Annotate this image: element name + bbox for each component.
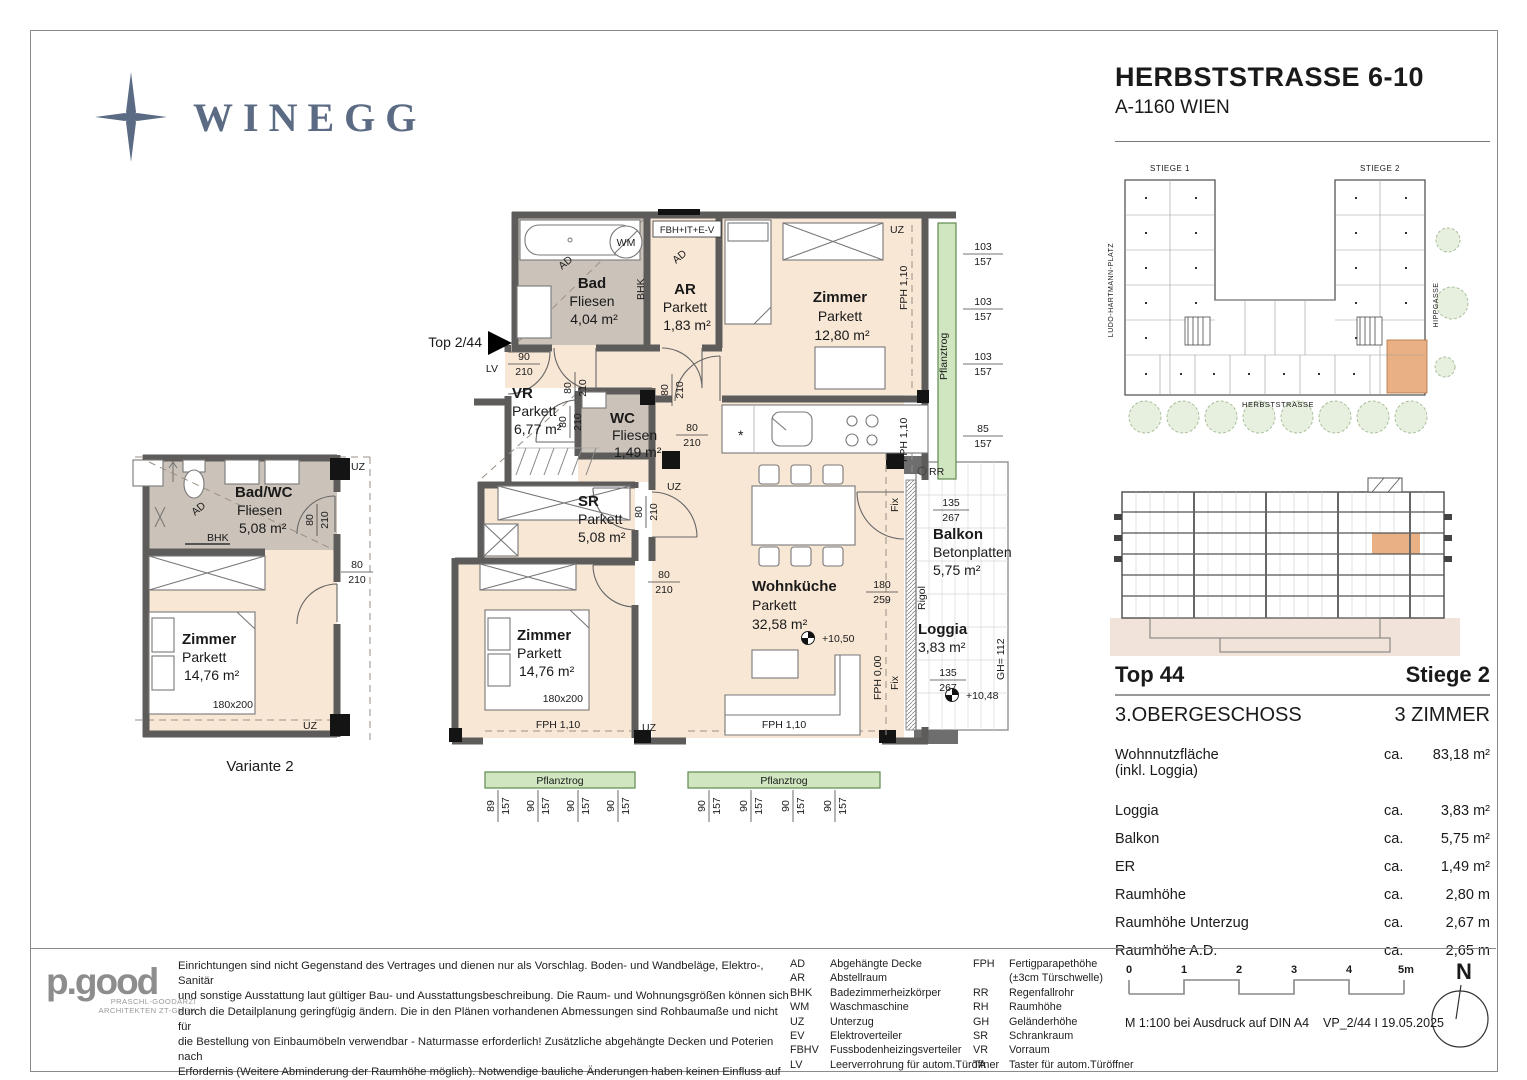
svg-text:90: 90 <box>738 800 750 812</box>
svg-text:157: 157 <box>580 797 592 815</box>
svg-text:157: 157 <box>837 797 849 815</box>
svg-text:90: 90 <box>605 800 617 812</box>
closet-icon <box>133 460 163 486</box>
svg-text:210: 210 <box>319 511 331 529</box>
svg-text:Fix: Fix <box>889 675 901 690</box>
variante-wardrobe-icon <box>149 556 265 590</box>
svg-text:Parkett: Parkett <box>517 645 561 661</box>
svg-text:90: 90 <box>518 351 530 363</box>
svg-text:90: 90 <box>822 800 834 812</box>
svg-text:4,04 m²: 4,04 m² <box>570 311 618 327</box>
table-row: ER ca. 1,49 m² <box>1115 853 1490 881</box>
svg-text:Pflanztrog: Pflanztrog <box>938 333 950 380</box>
wardrobe-zimmer2-icon <box>480 564 576 590</box>
footer: p.good PRASCHL-GOODARZI ARCHITEKTEN ZT-G… <box>30 948 1496 1071</box>
svg-text:180: 180 <box>873 579 891 591</box>
highlighted-unit <box>1387 340 1427 393</box>
svg-text:80: 80 <box>304 514 316 526</box>
svg-text:UZ: UZ <box>890 224 905 236</box>
svg-text:4: 4 <box>1346 964 1353 976</box>
svg-text:90: 90 <box>565 800 577 812</box>
svg-text:90: 90 <box>696 800 708 812</box>
svg-text:WC: WC <box>610 410 635 427</box>
svg-text:12,80 m²: 12,80 m² <box>814 327 870 343</box>
svg-text:157: 157 <box>711 797 723 815</box>
svg-text:157: 157 <box>753 797 765 815</box>
svg-text:GH= 112: GH= 112 <box>995 638 1007 680</box>
svg-text:6,77 m²: 6,77 m² <box>514 421 562 437</box>
entry-label: Top 2/44 <box>428 334 482 350</box>
roof-structure <box>1368 478 1402 492</box>
variante-caption: Variante 2 <box>125 758 395 775</box>
wardrobe-sr-left-icon <box>484 524 518 556</box>
svg-text:Pflanztrog: Pflanztrog <box>760 775 807 787</box>
project-title-block: HERBSTSTRASSE 6-10 A-1160 WIEN <box>1115 62 1493 119</box>
svg-text:WM: WM <box>617 237 636 249</box>
svg-text:FPH 1,10: FPH 1,10 <box>762 719 807 731</box>
floor-level: 3.OBERGESCHOSS <box>1115 704 1302 727</box>
svg-text:157: 157 <box>620 797 632 815</box>
basin1-icon <box>225 460 259 484</box>
svg-text:210: 210 <box>572 413 584 431</box>
svg-text:Bad/WC: Bad/WC <box>235 484 293 501</box>
svg-text:0: 0 <box>1126 964 1132 976</box>
lv-label: LV <box>486 363 498 375</box>
svg-text:180x200: 180x200 <box>213 699 253 711</box>
svg-text:Bad: Bad <box>578 275 606 292</box>
svg-text:Rigol: Rigol <box>916 586 928 610</box>
svg-text:5m: 5m <box>1398 964 1414 976</box>
svg-text:Betonplatten: Betonplatten <box>933 544 1012 560</box>
table-row: Loggia ca. 3,83 m² <box>1115 797 1490 825</box>
project-title: HERBSTSTRASSE 6-10 <box>1115 62 1493 93</box>
svg-text:5,08 m²: 5,08 m² <box>578 529 626 545</box>
street-right-label: HIPPGASSE <box>1433 283 1440 328</box>
svg-text:AR: AR <box>674 281 696 298</box>
info-panel: Top 44 Stiege 2 3.OBERGESCHOSS 3 ZIMMER … <box>1115 662 1490 965</box>
svg-text:Parkett: Parkett <box>752 597 796 613</box>
svg-text:Fliesen: Fliesen <box>569 293 614 309</box>
svg-text:Balkon: Balkon <box>933 526 983 543</box>
svg-text:1,83 m²: 1,83 m² <box>663 317 711 333</box>
svg-text:80: 80 <box>686 422 698 434</box>
svg-text:135: 135 <box>939 667 957 679</box>
svg-text:180x200: 180x200 <box>543 693 583 705</box>
washbasin-icon <box>517 286 551 338</box>
svg-text:157: 157 <box>795 797 807 815</box>
table-row: Raumhöhe Unterzug ca. 2,67 m <box>1115 909 1490 937</box>
svg-text:3,83 m²: 3,83 m² <box>918 639 966 655</box>
svg-text:80: 80 <box>351 559 363 571</box>
brand-name: WINEGG <box>193 94 426 141</box>
abbreviations-col1: ADAbgehängte Decke ARAbstellraum BHKBade… <box>790 957 1000 1072</box>
disclaimer: Einrichtungen sind nicht Gegenstand des … <box>178 959 790 1080</box>
svg-text:210: 210 <box>674 381 686 399</box>
svg-text:Zimmer: Zimmer <box>182 631 236 648</box>
variante-plan: Bad/WC Fliesen 5,08 m² AD BHK UZ UZ Zimm… <box>125 452 395 752</box>
svg-text:Parkett: Parkett <box>818 308 862 324</box>
svg-text:14,76 m²: 14,76 m² <box>519 663 575 679</box>
svg-text:Zimmer: Zimmer <box>813 289 867 306</box>
svg-text:UZ: UZ <box>642 722 657 734</box>
svg-text:103: 103 <box>974 296 992 308</box>
title-divider <box>1115 141 1490 142</box>
scale-bar-graphic: 0 1 2 3 4 5m <box>1125 963 1415 997</box>
svg-text:80: 80 <box>659 384 671 396</box>
svg-text:Zimmer: Zimmer <box>517 627 571 644</box>
svg-text:157: 157 <box>540 797 552 815</box>
svg-text:135: 135 <box>942 497 960 509</box>
svg-text:*: * <box>738 427 744 443</box>
svg-text:2: 2 <box>1236 964 1242 976</box>
svg-text:103: 103 <box>974 241 992 253</box>
unit-number: Top 44 <box>1115 662 1184 688</box>
svg-text:RR: RR <box>929 466 945 478</box>
svg-text:90: 90 <box>780 800 792 812</box>
svg-text:FPH 1,10: FPH 1,10 <box>898 265 910 310</box>
scale-note: M 1:100 bei Ausdruck auf DIN A4 <box>1125 1016 1309 1030</box>
north-label: N <box>1456 959 1472 984</box>
svg-text:80: 80 <box>557 416 569 428</box>
svg-text:UZ: UZ <box>351 461 366 473</box>
svg-text:5,08 m²: 5,08 m² <box>239 520 287 536</box>
svg-text:UZ: UZ <box>303 720 318 732</box>
svg-text:210: 210 <box>577 379 589 397</box>
svg-text:BHK: BHK <box>207 532 229 544</box>
highlighted-unit-section <box>1372 533 1420 554</box>
scale-bar: 0 1 2 3 4 5m M 1:100 bei Ausdruck auf DI… <box>1125 963 1415 1030</box>
compass-circle <box>1432 991 1488 1047</box>
abbreviations-col2: FPHFertigparapethöhe (±3cm Türschwelle) … <box>973 957 1148 1072</box>
bed-zimmer1-icon <box>725 220 771 324</box>
svg-text:VR: VR <box>512 385 533 402</box>
svg-text:Fliesen: Fliesen <box>612 427 657 443</box>
svg-text:157: 157 <box>974 438 992 450</box>
svg-text:32,58 m²: 32,58 m² <box>752 616 808 632</box>
svg-text:157: 157 <box>974 256 992 268</box>
area-table: Wohnnutzfläche (inkl. Loggia) ca. 83,18 … <box>1115 741 1490 965</box>
staircase: Stiege 2 <box>1406 662 1490 688</box>
svg-text:157: 157 <box>974 311 992 323</box>
svg-text:5,75 m²: 5,75 m² <box>933 562 981 578</box>
project-address: A-1160 WIEN <box>1115 97 1493 119</box>
site-building <box>1125 180 1427 395</box>
compass-needle <box>1456 985 1461 1019</box>
svg-text:SR: SR <box>578 493 599 510</box>
svg-text:Loggia: Loggia <box>918 621 968 638</box>
svg-text:210: 210 <box>515 366 533 378</box>
svg-text:Parkett: Parkett <box>512 403 556 419</box>
svg-text:3: 3 <box>1291 964 1297 976</box>
street-bottom-label: HERBSTSTRASSE <box>1242 400 1314 409</box>
main-floor-plan: Top 2/44 LV Bad Fliesen 4,04 m² FBH+IT+E… <box>420 190 1020 822</box>
svg-text:157: 157 <box>974 366 992 378</box>
architect-logo-text: p.good <box>46 967 196 997</box>
svg-text:Fix: Fix <box>889 497 901 512</box>
svg-text:Wohnküche: Wohnküche <box>752 578 837 595</box>
svg-text:Parkett: Parkett <box>182 649 226 665</box>
info-divider <box>1115 694 1490 696</box>
dining-table <box>752 465 855 566</box>
svg-text:1: 1 <box>1181 964 1187 976</box>
stiege2-label: STIEGE 2 <box>1360 164 1400 173</box>
svg-text:210: 210 <box>655 584 673 596</box>
table-row: Wohnnutzfläche (inkl. Loggia) ca. 83,18 … <box>1115 741 1490 785</box>
svg-text:259: 259 <box>873 594 891 606</box>
svg-text:157: 157 <box>500 797 512 815</box>
svg-text:Parkett: Parkett <box>663 299 707 315</box>
svg-text:210: 210 <box>348 574 366 586</box>
section-ground <box>1110 618 1460 656</box>
street-left-label: LUDO-HARTMANN-PLATZ <box>1108 243 1115 338</box>
north-arrow: N <box>1420 957 1500 1067</box>
architect-logo: p.good PRASCHL-GOODARZI ARCHITEKTEN ZT-G… <box>46 967 196 1015</box>
svg-text:Pflanztrog: Pflanztrog <box>536 775 583 787</box>
table-row: Raumhöhe ca. 2,80 m <box>1115 881 1490 909</box>
svg-text:89: 89 <box>485 800 497 812</box>
svg-text:UZ: UZ <box>667 481 682 493</box>
sideboard-icon <box>752 650 798 678</box>
winegg-logo: WINEGG <box>95 72 426 162</box>
svg-text:14,76 m²: 14,76 m² <box>184 667 240 683</box>
svg-text:80: 80 <box>633 506 645 518</box>
room-count: 3 ZIMMER <box>1394 704 1490 727</box>
building-section <box>1110 470 1460 660</box>
svg-text:80: 80 <box>562 382 574 394</box>
svg-text:FPH 0,00: FPH 0,00 <box>872 655 884 700</box>
basin2-icon <box>265 460 299 484</box>
svg-text:BHK: BHK <box>635 278 647 300</box>
winegg-star-icon <box>95 72 167 162</box>
svg-text:+10,48: +10,48 <box>966 690 999 702</box>
table-row: Balkon ca. 5,75 m² <box>1115 825 1490 853</box>
site-plan: STIEGE 1 STIEGE 2 LUDO-HARTMANN-PLATZ HI… <box>1100 155 1500 455</box>
svg-text:210: 210 <box>683 437 701 449</box>
stiege1-label: STIEGE 1 <box>1150 164 1190 173</box>
svg-text:85: 85 <box>977 423 989 435</box>
svg-text:Parkett: Parkett <box>578 511 622 527</box>
floorplan-page: WINEGG HERBSTSTRASSE 6-10 A-1160 WIEN <box>0 0 1527 1080</box>
svg-text:210: 210 <box>648 503 660 521</box>
svg-text:90: 90 <box>525 800 537 812</box>
svg-text:Fliesen: Fliesen <box>237 502 282 518</box>
svg-text:80: 80 <box>658 569 670 581</box>
svg-text:FPH 1,10: FPH 1,10 <box>898 417 910 462</box>
svg-text:103: 103 <box>974 351 992 363</box>
svg-text:FBH+IT+E-V: FBH+IT+E-V <box>660 225 715 236</box>
desk-icon <box>815 347 885 389</box>
svg-text:FPH 1,10: FPH 1,10 <box>536 719 581 731</box>
svg-text:+10,50: +10,50 <box>822 633 855 645</box>
wardrobe-zimmer1-icon <box>783 223 883 260</box>
svg-text:267: 267 <box>942 512 960 524</box>
entry-marker: Top 2/44 LV <box>428 331 512 375</box>
svg-text:1,49 m²: 1,49 m² <box>614 444 662 460</box>
svg-text:267: 267 <box>939 682 957 694</box>
